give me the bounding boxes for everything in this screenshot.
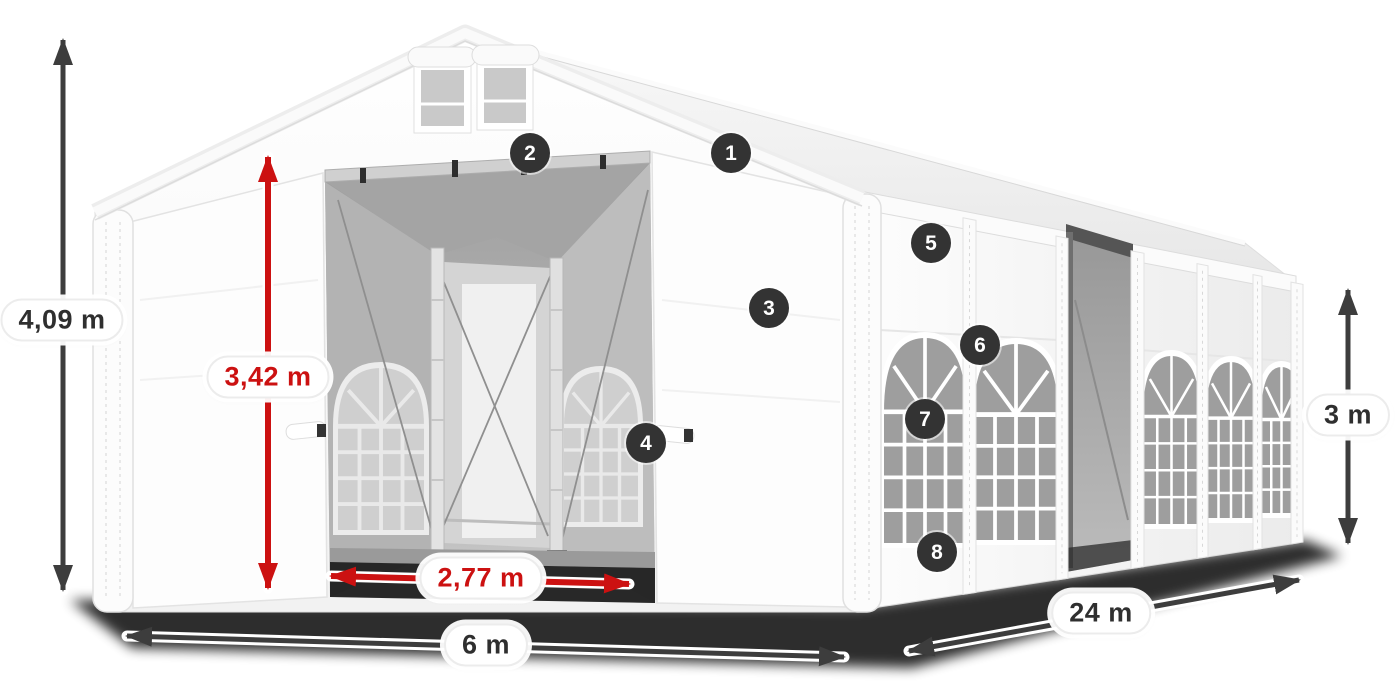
callout-badge-3: 3 bbox=[749, 288, 789, 328]
seam-strap bbox=[1131, 251, 1144, 569]
total-height-label: 4,09 m bbox=[0, 299, 123, 342]
seam-strap bbox=[963, 218, 976, 595]
callout-badge-7: 7 bbox=[905, 399, 945, 439]
side-window-1 bbox=[879, 332, 971, 548]
tent-width-label: 6 m bbox=[444, 624, 528, 667]
side-window-4 bbox=[1201, 356, 1261, 523]
side-window-3 bbox=[1138, 350, 1205, 529]
callout-badge-5: 5 bbox=[911, 223, 951, 263]
tent-dimension-diagram: 4,09 m 3,42 m 2,77 m 6 m 24 m 3 m 1 2 3 … bbox=[0, 0, 1400, 700]
seam-strap bbox=[1253, 275, 1262, 550]
side-window-2 bbox=[969, 338, 1063, 545]
callout-badge-6: 6 bbox=[960, 325, 1000, 365]
callout-badge-1: 1 bbox=[711, 133, 751, 173]
seam-strap bbox=[1291, 282, 1303, 544]
tent-length-label: 24 m bbox=[1051, 592, 1151, 635]
side-door-opening bbox=[1066, 224, 1133, 572]
entrance-opening bbox=[325, 151, 655, 603]
callout-badge-2: 2 bbox=[510, 133, 550, 173]
inner-left-window bbox=[333, 362, 429, 535]
callout-badge-8: 8 bbox=[917, 532, 957, 572]
callout-badge-4: 4 bbox=[626, 423, 666, 463]
entrance-height-label: 3,42 m bbox=[206, 356, 329, 399]
entrance-width-label: 2,77 m bbox=[419, 557, 542, 600]
side-height-label: 3 m bbox=[1306, 394, 1390, 437]
tent-illustration bbox=[0, 0, 1400, 700]
seam-strap bbox=[1197, 264, 1208, 559]
seam-strap bbox=[1056, 236, 1068, 580]
